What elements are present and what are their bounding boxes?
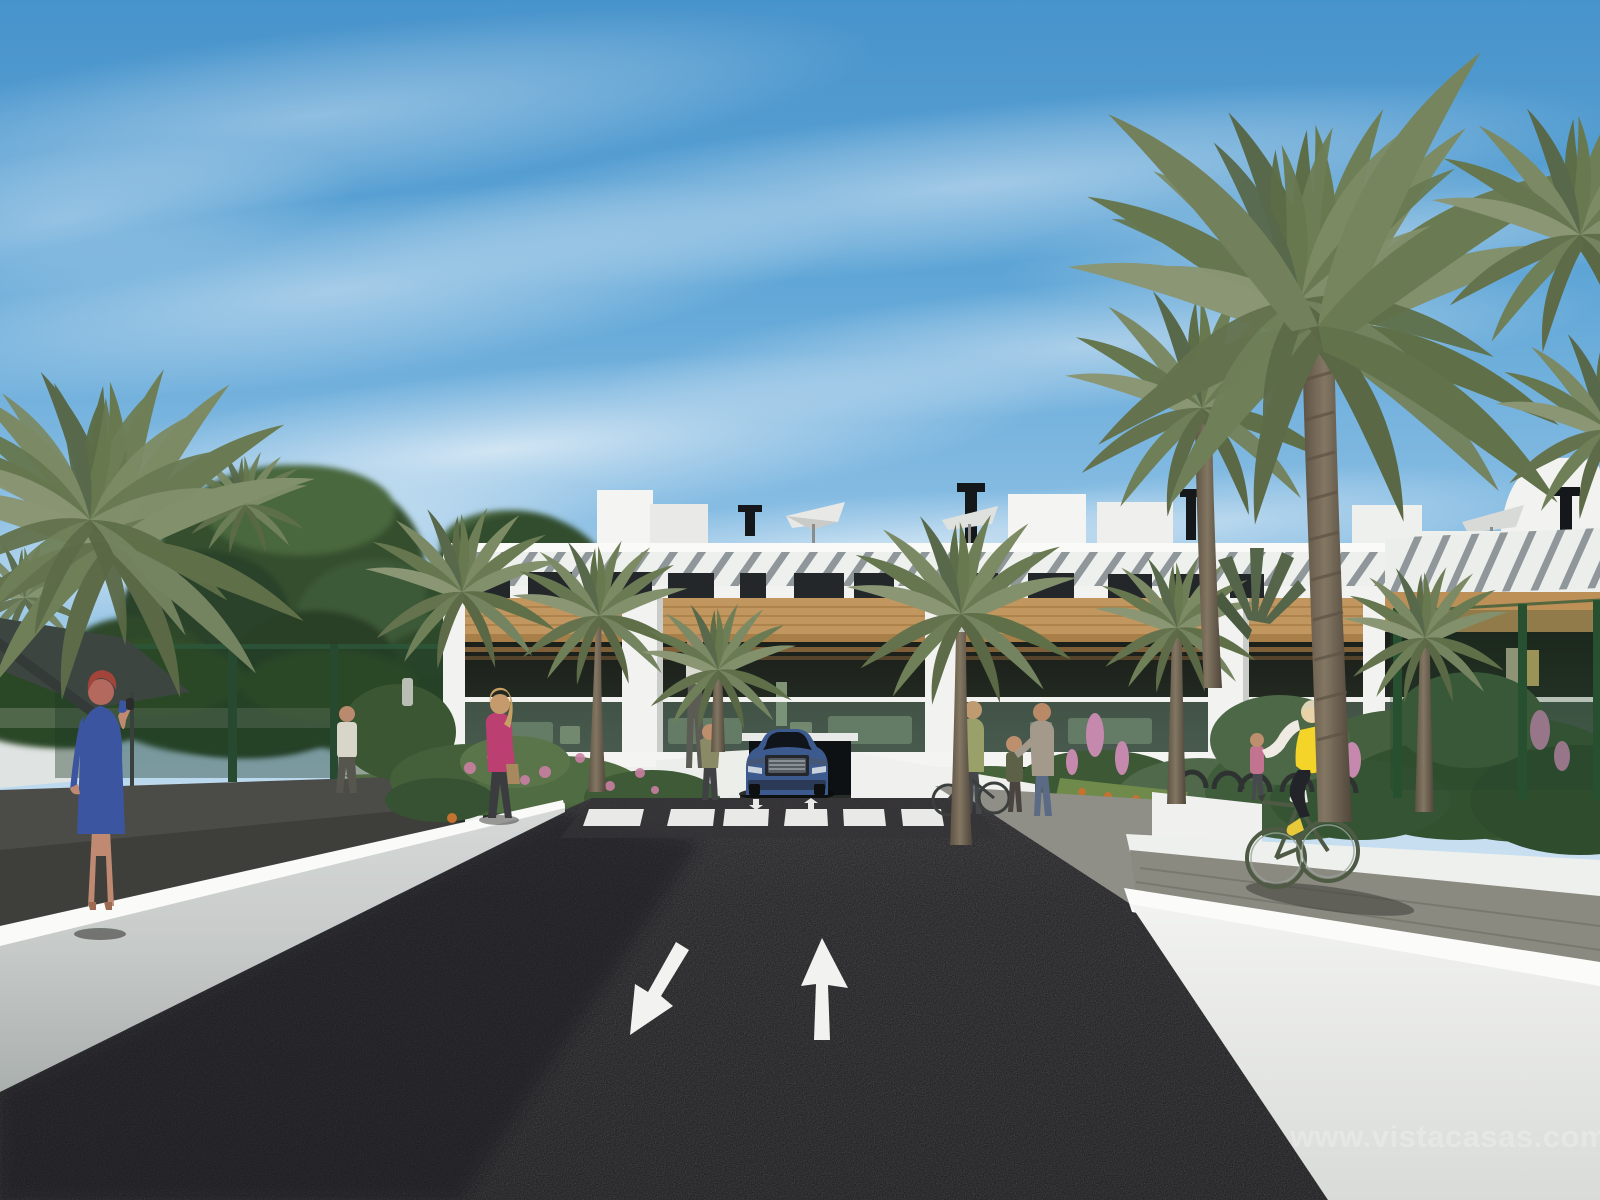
svg-text:www.vistacasas.com: www.vistacasas.com: [1289, 1119, 1600, 1154]
